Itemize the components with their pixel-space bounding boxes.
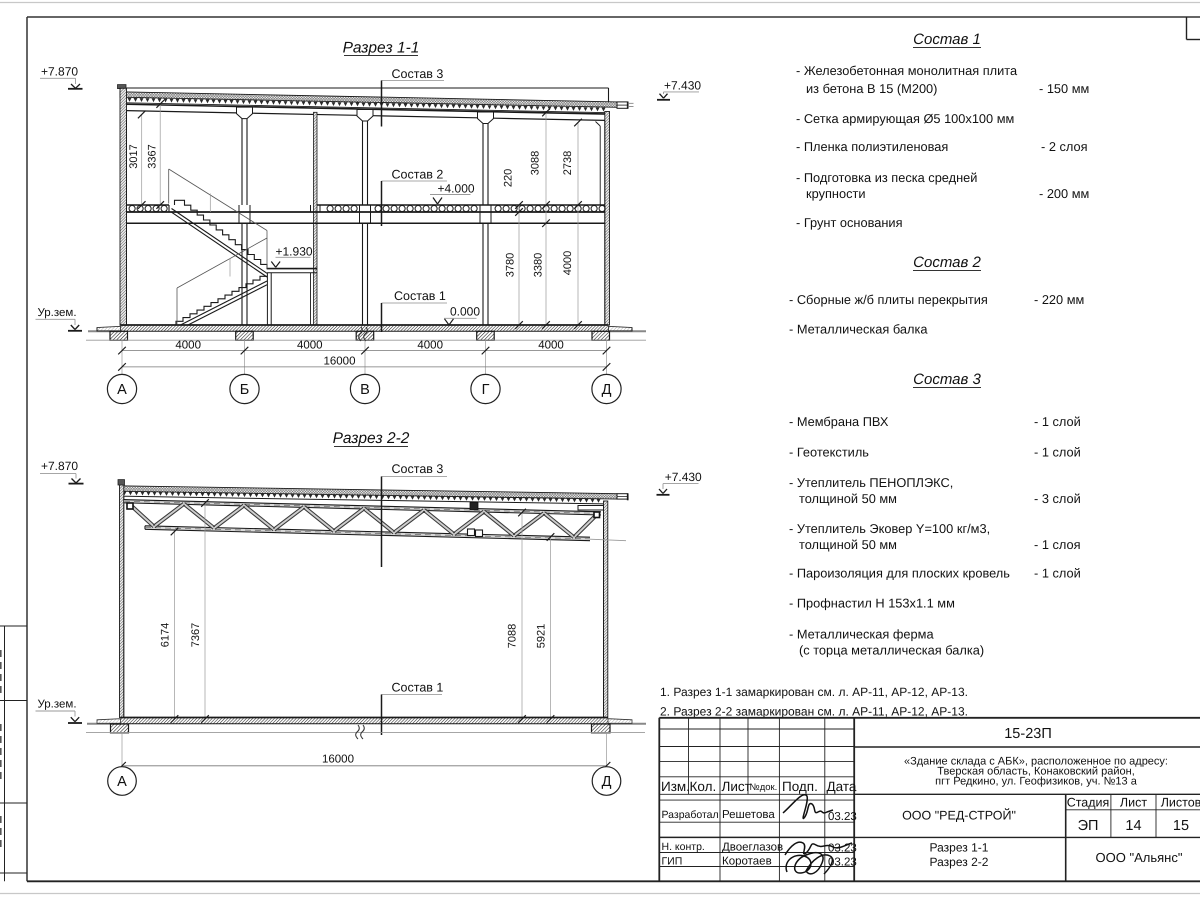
svg-text:Разрез 1-1: Разрез 1-1	[930, 841, 989, 855]
svg-text:03.23: 03.23	[828, 843, 857, 855]
svg-text:+7.430: +7.430	[665, 470, 702, 484]
svg-text:+7.870: +7.870	[41, 65, 78, 79]
svg-text:3017: 3017	[128, 144, 140, 168]
svg-text:3380: 3380	[533, 253, 545, 277]
svg-text:- 1 слой: - 1 слой	[1034, 445, 1081, 460]
svg-text:пгт Редкино, ул. Геофизиков, у: пгт Редкино, ул. Геофизиков, уч. №13 а	[935, 776, 1138, 788]
svg-text:- 220 мм: - 220 мм	[1034, 292, 1084, 307]
svg-text:4000: 4000	[175, 339, 201, 351]
svg-text:ООО "РЕД-СТРОЙ": ООО "РЕД-СТРОЙ"	[902, 808, 1016, 823]
svg-text:ГИП: ГИП	[662, 856, 683, 868]
svg-text:толщиной 50 мм: толщиной 50 мм	[799, 537, 897, 552]
svg-text:+1.930: +1.930	[276, 244, 313, 258]
svg-text:Д: Д	[602, 774, 612, 790]
svg-text:- Грунт основания: - Грунт основания	[796, 215, 903, 230]
svg-text:03.23: 03.23	[828, 811, 857, 823]
svg-text:Состав 2: Состав 2	[913, 254, 981, 271]
svg-text:ООО "Альянс": ООО "Альянс"	[1096, 850, 1183, 865]
svg-text:3780: 3780	[505, 253, 517, 277]
svg-text:Листов: Листов	[1161, 795, 1200, 809]
svg-text:4000: 4000	[562, 251, 574, 275]
svg-text:толщиной 50 мм: толщиной 50 мм	[799, 491, 897, 506]
svg-text:Коротаев: Коротаев	[722, 856, 772, 868]
svg-text:Б: Б	[240, 382, 250, 398]
svg-text:6174: 6174	[160, 623, 172, 647]
svg-text:Состав 1: Состав 1	[394, 289, 446, 303]
svg-text:Разработал: Разработал	[662, 809, 719, 821]
svg-text:- 3 слой: - 3 слой	[1034, 491, 1081, 506]
svg-text:А: А	[117, 774, 127, 790]
svg-text:Г: Г	[482, 382, 490, 398]
svg-text:Состав 3: Состав 3	[392, 67, 444, 81]
svg-text:2738: 2738	[562, 151, 574, 175]
svg-text:Состав 3: Состав 3	[913, 371, 981, 388]
svg-text:- Металлическая балка: - Металлическая балка	[789, 322, 928, 337]
svg-text:- 1 слой: - 1 слой	[1034, 566, 1081, 581]
svg-text:+4.000: +4.000	[438, 182, 475, 196]
svg-text:Двоеглазов: Двоеглазов	[722, 842, 783, 854]
svg-text:Н. контр.: Н. контр.	[662, 841, 705, 853]
svg-text:(с торца металлическая балка): (с торца металлическая балка)	[799, 643, 984, 658]
svg-text:Ур.зем.: Ур.зем.	[38, 307, 77, 319]
svg-text:+7.870: +7.870	[41, 459, 78, 473]
svg-text:15: 15	[1173, 818, 1189, 834]
svg-text:Изм.: Изм.	[661, 779, 690, 794]
svg-text:- Утеплитель Эковер Y=100 кг/м: - Утеплитель Эковер Y=100 кг/м3,	[789, 521, 990, 536]
svg-text:Разрез 1-1: Разрез 1-1	[343, 40, 420, 57]
svg-text:Разрез 2-2: Разрез 2-2	[333, 430, 410, 447]
svg-text:3088: 3088	[530, 151, 542, 175]
svg-text:А: А	[117, 382, 127, 398]
svg-text:- 1 слой: - 1 слой	[1034, 414, 1081, 429]
svg-text:В: В	[360, 382, 370, 398]
svg-text:Решетова: Решетова	[722, 809, 775, 821]
svg-text:- Сборные ж/б плиты перекрытия: - Сборные ж/б плиты перекрытия	[789, 292, 988, 307]
svg-text:4000: 4000	[297, 339, 323, 351]
svg-text:2. Разрез 2-2 замаркирован см.: 2. Разрез 2-2 замаркирован см. л. АР-11,…	[660, 705, 968, 719]
svg-text:ЭП: ЭП	[1078, 818, 1099, 834]
svg-text:0.000: 0.000	[450, 305, 480, 319]
svg-text:16000: 16000	[324, 355, 356, 367]
svg-text:из бетона В 15 (М200): из бетона В 15 (М200)	[806, 81, 937, 96]
svg-text:- 1 слоя: - 1 слоя	[1034, 537, 1081, 552]
svg-text:16000: 16000	[322, 754, 354, 766]
svg-text:Стадия: Стадия	[1067, 795, 1110, 809]
svg-text:4000: 4000	[538, 339, 564, 351]
svg-text:5921: 5921	[536, 624, 548, 648]
svg-text:- Металлическая ферма: - Металлическая ферма	[789, 627, 934, 642]
svg-text:- 200 мм: - 200 мм	[1039, 186, 1089, 201]
svg-text:- 150 мм: - 150 мм	[1039, 81, 1089, 96]
svg-text:Состав 2: Состав 2	[392, 168, 444, 182]
svg-text:Подп.: Подп.	[782, 779, 818, 794]
svg-text:1. Разрез 1-1 замаркирован см.: 1. Разрез 1-1 замаркирован см. л. АР-11,…	[660, 685, 968, 699]
svg-text:- Профнастил Н 153х1.1 мм: - Профнастил Н 153х1.1 мм	[789, 596, 955, 611]
svg-text:крупности: крупности	[806, 186, 866, 201]
svg-text:Ур.зем.: Ур.зем.	[38, 699, 77, 711]
svg-text:Состав 3: Состав 3	[392, 462, 444, 476]
svg-text:Лист: Лист	[1120, 795, 1147, 809]
svg-text:- Утеплитель ПЕНОПЛЭКС,: - Утеплитель ПЕНОПЛЭКС,	[789, 475, 953, 490]
svg-text:Кол.: Кол.	[690, 779, 717, 794]
svg-text:15-23П: 15-23П	[1004, 726, 1052, 742]
svg-text:- 2 слоя: - 2 слоя	[1041, 139, 1088, 154]
svg-text:Д: Д	[602, 382, 612, 398]
svg-text:Состав 1: Состав 1	[392, 681, 444, 695]
svg-text:- Подготовка из песка средней: - Подготовка из песка средней	[796, 170, 977, 185]
svg-text:- Мембрана ПВХ: - Мембрана ПВХ	[789, 414, 889, 429]
svg-text:Лист: Лист	[722, 779, 751, 794]
svg-text:Разрез 2-2: Разрез 2-2	[930, 855, 989, 869]
svg-text:Состав 1: Состав 1	[913, 31, 981, 48]
svg-text:14: 14	[1125, 818, 1141, 834]
svg-text:- Пленка полиэтиленовая: - Пленка полиэтиленовая	[796, 139, 948, 154]
svg-text:7088: 7088	[507, 624, 519, 648]
svg-text:- Сетка армирующая Ø5 100х100: - Сетка армирующая Ø5 100х100 мм	[796, 111, 1014, 126]
svg-text:3367: 3367	[147, 144, 159, 168]
svg-text:4000: 4000	[417, 339, 443, 351]
svg-text:- Железобетонная монолитная п: - Железобетонная монолитная плита	[796, 63, 1018, 78]
svg-text:7367: 7367	[190, 623, 202, 647]
svg-text:Дата: Дата	[827, 779, 857, 794]
svg-text:- Геотекстиль: - Геотекстиль	[789, 445, 869, 460]
svg-text:- Пароизоляция для плоских кро: - Пароизоляция для плоских кровель	[789, 566, 1010, 581]
svg-text:+7.430: +7.430	[664, 79, 701, 93]
svg-text:220: 220	[503, 169, 515, 187]
svg-text:№док.: №док.	[750, 782, 778, 793]
